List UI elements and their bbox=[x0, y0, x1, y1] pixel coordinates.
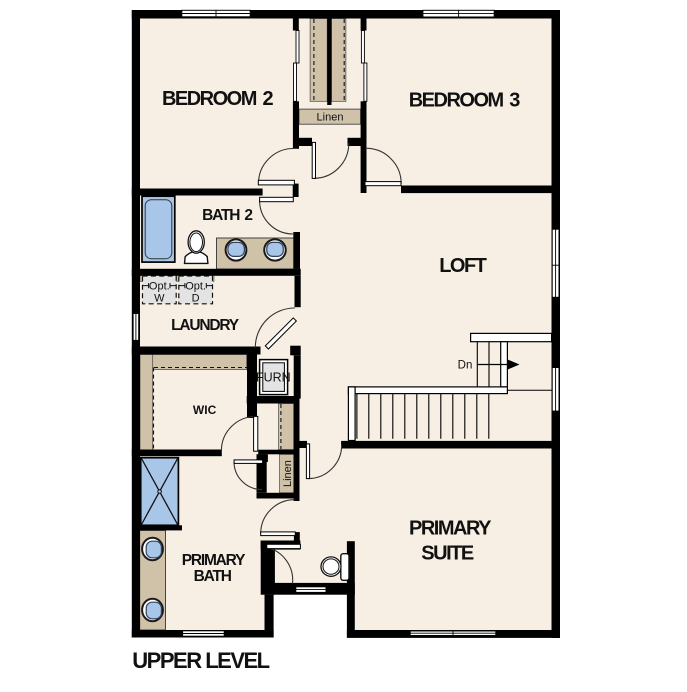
svg-text:BATH 2: BATH 2 bbox=[202, 207, 252, 224]
svg-text:UPPER LEVEL: UPPER LEVEL bbox=[132, 648, 269, 673]
svg-text:BEDROOM 3: BEDROOM 3 bbox=[409, 90, 521, 112]
svg-text:WIC: WIC bbox=[193, 403, 217, 417]
svg-text:Opt.: Opt. bbox=[149, 280, 170, 292]
svg-text:LAUNDRY: LAUNDRY bbox=[171, 317, 240, 334]
svg-text:Opt.: Opt. bbox=[185, 280, 206, 292]
svg-text:Linen: Linen bbox=[282, 460, 294, 487]
svg-text:BATH: BATH bbox=[194, 568, 232, 585]
svg-text:BEDROOM 2: BEDROOM 2 bbox=[162, 88, 274, 110]
svg-text:FURN: FURN bbox=[256, 371, 291, 385]
svg-text:LOFT: LOFT bbox=[439, 255, 486, 277]
svg-text:PRIMARY: PRIMARY bbox=[182, 552, 246, 569]
svg-text:W: W bbox=[154, 292, 165, 304]
svg-text:PRIMARY: PRIMARY bbox=[409, 517, 492, 539]
svg-text:Dn: Dn bbox=[458, 360, 473, 372]
svg-text:D: D bbox=[192, 292, 200, 304]
svg-text:Linen: Linen bbox=[317, 112, 344, 124]
svg-text:SUITE: SUITE bbox=[421, 542, 474, 564]
